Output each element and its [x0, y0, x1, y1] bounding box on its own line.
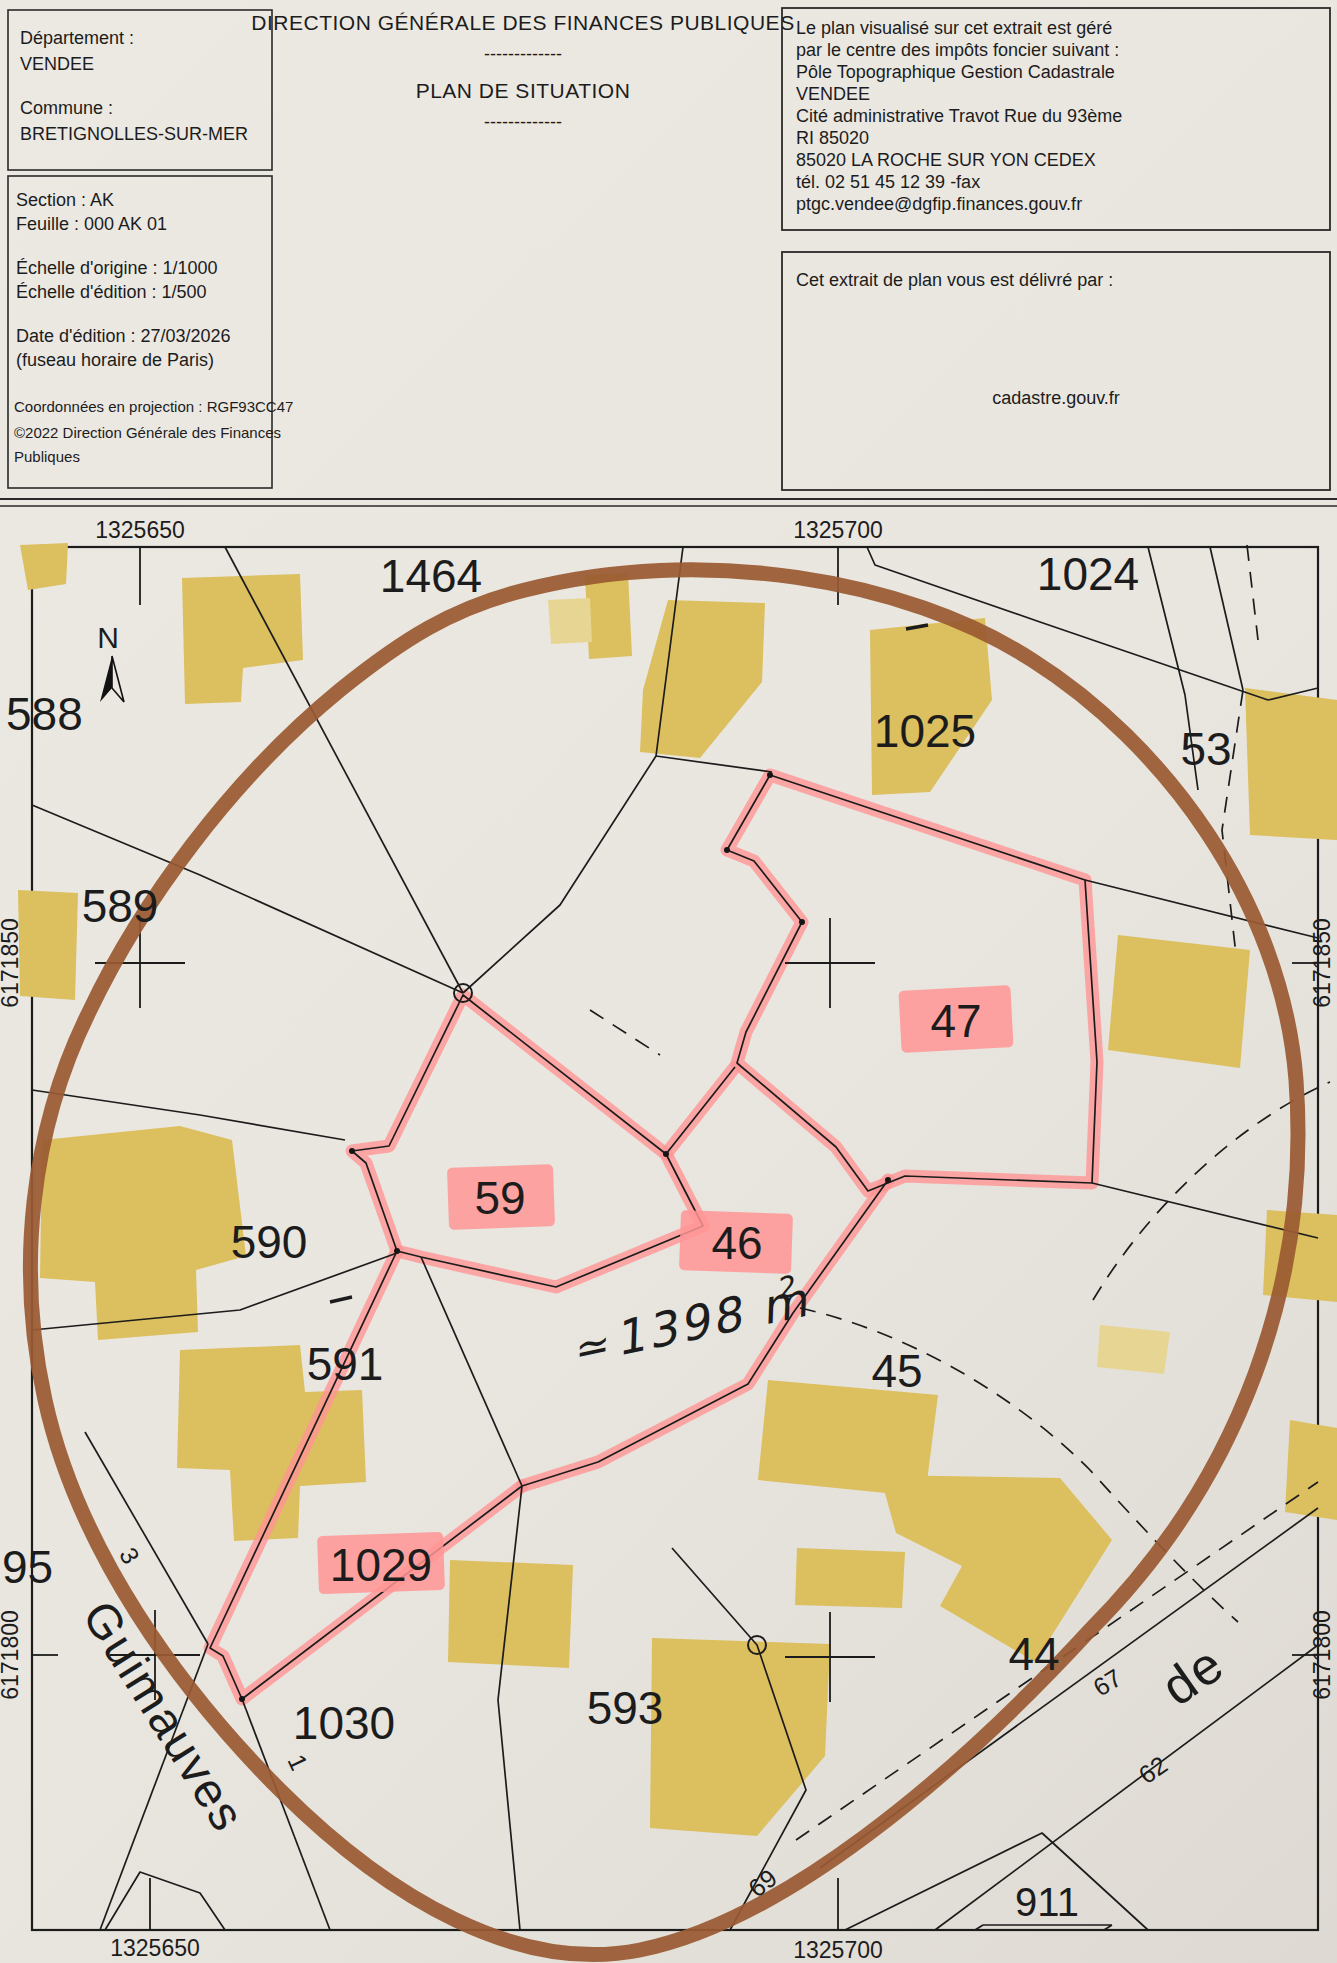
page-title: DIRECTION GÉNÉRALE DES FINANCES PUBLIQUE… — [251, 11, 794, 34]
parcel-label-588: 588 — [6, 688, 83, 740]
parcel-label-1024: 1024 — [1037, 548, 1139, 600]
office-line: 85020 LA ROCHE SUR YON CEDEX — [796, 150, 1096, 170]
office-line: Le plan visualisé sur cet extrait est gé… — [796, 18, 1112, 38]
delivery-site: cadastre.gouv.fr — [992, 388, 1120, 408]
parcel-label-1464: 1464 — [380, 550, 482, 602]
parcel-label-53: 53 — [1180, 723, 1231, 775]
office-line: ptgc.vendee@dgfip.finances.gouv.fr — [796, 194, 1082, 214]
departement-label: Département : — [20, 28, 134, 48]
fuseau-line: (fuseau horaire de Paris) — [16, 350, 214, 370]
building — [795, 1548, 905, 1608]
grid-label-left-upper: 6171850 — [0, 918, 23, 1008]
grid-label-bottom-right: 1325700 — [793, 1937, 883, 1963]
title-separator-2: ------------- — [484, 112, 562, 132]
echelle-edition-line: Échelle d'édition : 1/500 — [16, 282, 207, 302]
plan-svg: Département : VENDEE Commune : BRETIGNOL… — [0, 0, 1337, 1963]
building — [1108, 935, 1250, 1068]
commune-label: Commune : — [20, 98, 113, 118]
grid-label-top-right: 1325700 — [793, 517, 883, 543]
office-line: VENDEE — [796, 84, 870, 104]
building — [18, 890, 78, 1000]
parcel-label-911: 911 — [1015, 1880, 1079, 1924]
parcel-label-45: 45 — [871, 1345, 922, 1397]
grid-label-top-left: 1325650 — [95, 517, 185, 543]
office-line: Pôle Topographique Gestion Cadastrale — [796, 62, 1115, 82]
number-67: 67 — [1088, 1663, 1126, 1701]
grid-label-left-lower: 6171800 — [0, 1610, 23, 1700]
delivery-label: Cet extrait de plan vous est délivré par… — [796, 270, 1113, 290]
echelle-origine-line: Échelle d'origine : 1/1000 — [16, 258, 218, 278]
number-3: 3 — [114, 1542, 145, 1568]
copyright-line1: ©2022 Direction Générale des Finances — [14, 424, 281, 441]
building — [700, 1780, 755, 1828]
projection-line: Coordonnées en projection : RGF93CC47 — [14, 398, 293, 415]
commune-value: BRETIGNOLLES-SUR-MER — [20, 124, 248, 144]
building — [448, 1560, 573, 1668]
parcel-label-95: 95 — [2, 1541, 53, 1593]
parcel-label-1030: 1030 — [293, 1697, 395, 1749]
north-arrow-icon — [112, 656, 124, 702]
grid-label-right-upper: 6171850 — [1309, 918, 1335, 1008]
street-label-guimauves: Guimauves — [72, 1592, 255, 1841]
grid-label-bottom-left: 1325650 — [110, 1935, 200, 1961]
north-arrow-icon — [100, 656, 112, 702]
parcel-label-47: 47 — [930, 995, 981, 1047]
street-label-de: de — [1151, 1634, 1235, 1717]
parcel-label-59: 59 — [474, 1172, 525, 1224]
office-line: RI 85020 — [796, 128, 869, 148]
number-1: 1 — [283, 1750, 314, 1774]
parcel-label-589: 589 — [82, 880, 159, 932]
feuille-line: Feuille : 000 AK 01 — [16, 214, 167, 234]
building — [1285, 1420, 1337, 1520]
parcel-label-1029: 1029 — [330, 1539, 432, 1591]
highlight-parcel-47 — [727, 775, 1097, 1191]
section-line: Section : AK — [16, 190, 114, 210]
cadastral-plan-page: Département : VENDEE Commune : BRETIGNOL… — [0, 0, 1337, 1963]
copyright-line2: Publiques — [14, 448, 80, 465]
north-arrow: N — [97, 621, 124, 702]
office-line: Cité administrative Travot Rue du 93ème — [796, 106, 1122, 126]
building — [20, 543, 68, 590]
building — [40, 1126, 246, 1340]
date-edition-line: Date d'édition : 27/03/2026 — [16, 326, 231, 346]
building — [585, 573, 632, 659]
north-label: N — [97, 621, 119, 654]
parcel-label-46: 46 — [711, 1217, 762, 1269]
number-62: 62 — [1133, 1750, 1172, 1789]
parcel-label-44: 44 — [1008, 1628, 1059, 1680]
map-area: N 1464 1024 1025 53 588 589 590 591 95 1… — [0, 517, 1337, 1963]
office-line: tél. 02 51 45 12 39 -fax — [796, 172, 980, 192]
parcel-label-591: 591 — [307, 1338, 384, 1390]
page-subtitle: PLAN DE SITUATION — [416, 79, 631, 102]
parcel-label-1025: 1025 — [874, 705, 976, 757]
departement-value: VENDEE — [20, 54, 94, 74]
annotation-approx-sign: ≃ — [567, 1319, 612, 1374]
parcel-label-593: 593 — [587, 1682, 664, 1734]
building — [1097, 1325, 1170, 1374]
building — [548, 598, 592, 644]
parcel-label-590: 590 — [231, 1216, 308, 1268]
office-line: par le centre des impôts foncier suivant… — [796, 40, 1119, 60]
title-separator-1: ------------- — [484, 44, 562, 64]
building — [182, 574, 303, 704]
grid-label-right-lower: 6171800 — [1309, 1610, 1335, 1700]
building — [1245, 688, 1337, 840]
area-annotation: ≃ 1398 m 2 — [565, 1267, 815, 1376]
header: Département : VENDEE Commune : BRETIGNOL… — [0, 8, 1337, 506]
